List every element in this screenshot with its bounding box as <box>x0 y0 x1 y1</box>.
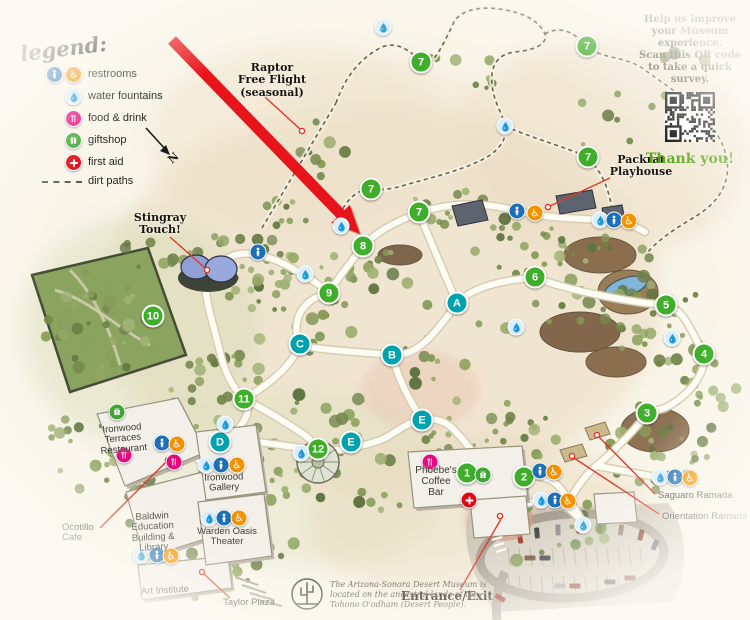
legend-icon-cell <box>42 110 82 127</box>
stop-marker-wrap: 4 <box>693 343 716 366</box>
accessible-marker: ♿ <box>682 470 699 487</box>
stop-marker-wrap: 11 <box>233 388 256 411</box>
label-orientation-ramada: Orientation Ramada <box>662 512 747 522</box>
stop-marker-8: 8 <box>352 235 375 258</box>
water-marker <box>508 319 525 336</box>
legend-item-label: first aid <box>88 157 123 169</box>
water-marker <box>297 266 314 283</box>
accessible-marker: ♿ <box>527 205 544 222</box>
stop-marker-7: 7 <box>576 35 599 58</box>
survey-line2: Scan this QR code to take a quick survey… <box>633 50 747 86</box>
stop-marker-7: 7 <box>410 51 433 74</box>
stop-marker-6: 6 <box>524 266 547 289</box>
firstaid-marker <box>461 492 478 509</box>
water-fountain-icon <box>664 330 681 347</box>
legend-item-restrooms: ♿restrooms <box>42 66 194 83</box>
accessible-restroom-icon: ♿ <box>560 493 577 510</box>
accessible-restroom-icon: ♿ <box>621 213 638 230</box>
accessible-marker: ♿ <box>546 464 563 481</box>
dirt-path-sample <box>42 181 82 183</box>
stop-marker-wrap: 3 <box>636 402 659 425</box>
water-marker <box>375 19 392 36</box>
junction-marker-wrap: E <box>340 431 363 454</box>
stop-marker-wrap: 9 <box>318 282 341 305</box>
restroom-marker <box>509 203 526 220</box>
accessible-marker: ♿ <box>169 436 186 453</box>
food-drink-icon <box>166 454 183 471</box>
stop-marker-wrap: 5 <box>655 294 678 317</box>
first-aid-icon <box>65 154 82 171</box>
legend-item-dirt: dirt paths <box>42 176 194 188</box>
stop-marker-wrap: 7 <box>577 146 600 169</box>
label-phoebes-coffee: Phoebe'sCoffeeBar <box>415 465 456 498</box>
water-fountain-icon <box>297 266 314 283</box>
label-saguaro-ramada: Saguaro Ramada <box>658 491 732 501</box>
stop-marker-5: 5 <box>655 294 678 317</box>
land-acknowledgment: The Arizona-Sonora Desert Museum islocat… <box>330 580 487 610</box>
junction-marker-A: A <box>446 292 469 315</box>
legend-item-label: food & drink <box>88 113 147 125</box>
gift-marker <box>109 404 126 421</box>
legend-item-gift: giftshop <box>42 132 194 149</box>
stop-marker-4: 4 <box>693 343 716 366</box>
legend-icon-cell <box>42 181 82 183</box>
water-marker <box>217 416 234 433</box>
food-marker <box>166 454 183 471</box>
legend-panel: legend: ♿restroomswater fountainsfood & … <box>14 36 194 188</box>
junction-marker-E: E <box>340 431 363 454</box>
accessible-marker: ♿ <box>621 213 638 230</box>
thank-you-text: Thank you! <box>633 151 747 167</box>
stop-marker-10: 10 <box>142 305 165 328</box>
stop-marker-wrap: 6 <box>524 266 547 289</box>
stop-marker-7: 7 <box>360 178 383 201</box>
label-taylor-plaza: Taylor Plaza <box>223 598 275 608</box>
survey-panel: Help us improve your Museum experience. … <box>633 14 747 167</box>
stop-marker-3: 3 <box>636 402 659 425</box>
stop-marker-wrap: 7 <box>576 35 599 58</box>
restroom-icon <box>46 66 63 83</box>
water-fountain-icon <box>497 118 514 135</box>
legend-icon-cell <box>42 88 82 105</box>
stop-marker-7: 7 <box>577 146 600 169</box>
label-stingray-touch: StingrayTouch! <box>134 212 186 237</box>
accessible-restroom-icon: ♿ <box>65 66 82 83</box>
restroom-marker <box>250 244 267 261</box>
stop-marker-12: 12 <box>307 438 330 461</box>
legend-title: legend: <box>19 31 108 66</box>
accessible-restroom-icon: ♿ <box>546 464 563 481</box>
stop-marker-11: 11 <box>233 388 256 411</box>
label-ironwood-terraces: IronwoodTerracesRestaurant <box>98 422 147 457</box>
water-fountain-icon <box>65 88 82 105</box>
junction-marker-wrap: B <box>381 344 404 367</box>
junction-marker-C: C <box>289 333 312 356</box>
water-fountain-icon <box>217 416 234 433</box>
stop-marker-9: 9 <box>318 282 341 305</box>
stop-marker-wrap: 10 <box>142 305 165 328</box>
legend-item-label: water fountains <box>88 91 163 103</box>
accessible-marker: ♿ <box>231 510 248 527</box>
restroom-icon <box>509 203 526 220</box>
desert-museum-map: N 1234567777789101112ABCDEE♿♿♿♿♿♿♿♿♿ leg… <box>0 0 750 620</box>
accessible-restroom-icon: ♿ <box>527 205 544 222</box>
gift-marker <box>475 467 492 484</box>
water-fountain-icon <box>575 517 592 534</box>
giftshop-icon <box>475 467 492 484</box>
giftshop-icon <box>65 132 82 149</box>
water-marker <box>664 330 681 347</box>
stop-marker-wrap: 8 <box>352 235 375 258</box>
label-ironwood-gallery: IronwoodGallery <box>204 472 244 494</box>
legend-item-food: food & drink <box>42 110 194 127</box>
water-fountain-icon <box>508 319 525 336</box>
stop-marker-wrap: 12 <box>307 438 330 461</box>
legend-item-label: restrooms <box>88 69 137 81</box>
accessible-restroom-icon: ♿ <box>169 436 186 453</box>
junction-marker-D: D <box>209 431 232 454</box>
junction-marker-E: E <box>411 409 434 432</box>
legend-items: ♿restroomswater fountainsfood & drinkgif… <box>14 66 194 188</box>
label-ocotillo-cafe: OcotilloCafe <box>62 523 94 544</box>
legend-icon-cell <box>42 132 82 149</box>
survey-line1: Help us improve your Museum experience. <box>633 14 747 50</box>
stop-marker-wrap: 7 <box>360 178 383 201</box>
accessible-restroom-icon: ♿ <box>231 510 248 527</box>
legend-item-label: giftshop <box>88 135 127 147</box>
label-warden-oasis: Warden OasisTheater <box>197 527 257 548</box>
junction-marker-wrap: E <box>411 409 434 432</box>
water-marker <box>575 517 592 534</box>
junction-marker-wrap: C <box>289 333 312 356</box>
water-marker <box>497 118 514 135</box>
water-fountain-icon <box>293 445 310 462</box>
legend-icon-cell <box>42 154 82 171</box>
water-fountain-icon <box>333 218 350 235</box>
junction-marker-wrap: A <box>446 292 469 315</box>
giftshop-icon <box>109 404 126 421</box>
label-baldwin-education: BaldwinEducationBuilding &Library <box>131 511 176 555</box>
stop-marker-7: 7 <box>408 201 431 224</box>
restroom-icon <box>250 244 267 261</box>
junction-marker-B: B <box>381 344 404 367</box>
legend-item-water: water fountains <box>42 88 194 105</box>
label-raptor-free-flight: RaptorFree Flight(seasonal) <box>238 62 306 99</box>
stop-marker-wrap: 7 <box>410 51 433 74</box>
legend-item-firstaid: first aid <box>42 154 194 171</box>
accessible-restroom-icon: ♿ <box>682 470 699 487</box>
food-drink-icon <box>65 110 82 127</box>
qr-code <box>665 92 715 142</box>
stop-marker-wrap: 7 <box>408 201 431 224</box>
accessible-marker: ♿ <box>560 493 577 510</box>
legend-item-label: dirt paths <box>88 176 133 188</box>
first-aid-icon <box>461 492 478 509</box>
junction-marker-wrap: D <box>209 431 232 454</box>
water-marker <box>333 218 350 235</box>
water-marker <box>293 445 310 462</box>
water-fountain-icon <box>375 19 392 36</box>
legend-icon-cell: ♿ <box>42 66 82 83</box>
